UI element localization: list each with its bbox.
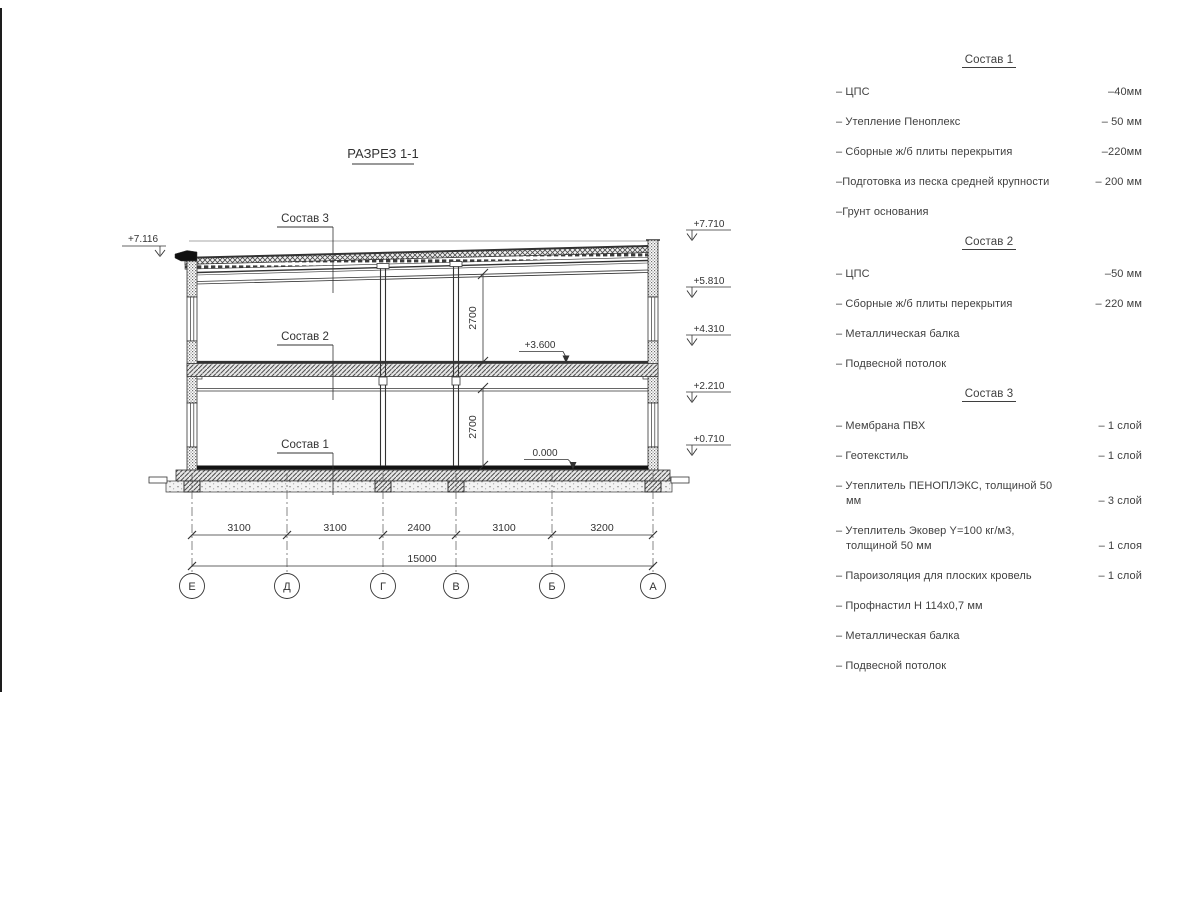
legend-item: – Геотекстиль– 1 слой <box>836 449 1142 464</box>
right-wall <box>643 240 660 470</box>
ground-slab <box>149 466 689 493</box>
legend-group-sostav-3: Состав 3 – Мембрана ПВХ– 1 слой – Геотек… <box>836 387 1142 674</box>
svg-text:+3.600: +3.600 <box>525 340 556 351</box>
left-wall <box>175 251 202 471</box>
svg-text:+7.116: +7.116 <box>128 234 159 245</box>
elevation-floor2: +3.600 <box>519 340 570 363</box>
legend-group-sostav-1: Состав 1 – ЦПС–40мм – Утепление Пеноплек… <box>836 53 1142 220</box>
svg-text:3100: 3100 <box>492 522 516 534</box>
svg-text:+4.310: +4.310 <box>694 324 725 335</box>
floor-slab-2 <box>187 362 658 391</box>
dimension-row-total: 15000 <box>188 553 657 570</box>
svg-text:2700: 2700 <box>467 306 479 330</box>
legend-item: – ЦПС–40мм <box>836 85 1142 100</box>
svg-text:15000: 15000 <box>407 553 436 565</box>
legend-item: – Пароизоляция для плоских кровель– 1 сл… <box>836 569 1142 584</box>
svg-text:Г: Г <box>380 581 386 593</box>
svg-text:А: А <box>649 581 657 593</box>
legend-item: – Мембрана ПВХ– 1 слой <box>836 419 1142 434</box>
label-sostav-3: Состав 3 <box>281 213 329 225</box>
svg-text:+5.810: +5.810 <box>694 276 725 287</box>
label-sostav-1: Состав 1 <box>281 439 329 451</box>
legend-item: – ЦПС–50 мм <box>836 267 1142 282</box>
svg-text:+0.710: +0.710 <box>694 434 725 445</box>
svg-text:0.000: 0.000 <box>532 448 557 459</box>
svg-text:Д: Д <box>283 581 291 593</box>
drawing-sheet: РАЗРЕЗ 1-1 <box>0 0 1200 900</box>
legend-item: – Металлическая балка <box>836 629 1142 644</box>
legend-item: – Утепление Пеноплекс– 50 мм <box>836 115 1142 130</box>
legend-item: – Профнастил Н 114х0,7 мм <box>836 599 1142 614</box>
legend-item: – Сборные ж/б плиты перекрытия– 220 мм <box>836 297 1142 312</box>
roof-assembly <box>185 246 652 284</box>
legend-title: Состав 2 <box>836 235 1142 250</box>
legend-item: –Грунт основания <box>836 205 1142 220</box>
svg-text:+2.210: +2.210 <box>694 381 725 392</box>
axis-bubbles: Е Д Г В Б А <box>180 574 666 599</box>
svg-text:3100: 3100 <box>323 522 347 534</box>
legend-item: – Металлическая балка <box>836 327 1142 342</box>
legend-item: – Подвесной потолок <box>836 659 1142 674</box>
legend-item: – Утеплитель Эковер Y=100 кг/м3, толщино… <box>836 524 1142 554</box>
svg-text:2700: 2700 <box>467 415 479 439</box>
dimension-row-segments: 3100 3100 2400 3100 3200 <box>188 522 657 539</box>
materials-legend: Состав 1 – ЦПС–40мм – Утепление Пеноплек… <box>836 53 1142 689</box>
svg-text:3200: 3200 <box>590 522 614 534</box>
svg-text:В: В <box>452 581 459 593</box>
elevation-right: +7.710 +5.810 +4.310 +2.21 <box>686 219 731 456</box>
label-sostav-2: Состав 2 <box>281 331 329 343</box>
roof-drain-icon <box>175 251 197 262</box>
legend-item: – Подвесной потолок <box>836 357 1142 372</box>
legend-title: Состав 3 <box>836 387 1142 402</box>
legend-item: –Подготовка из песка средней крупности– … <box>836 175 1142 190</box>
legend-item: – Сборные ж/б плиты перекрытия–220мм <box>836 145 1142 160</box>
elevation-left: +7.116 <box>122 234 166 257</box>
svg-text:+7.710: +7.710 <box>694 219 725 230</box>
drawing-title: РАЗРЕЗ 1-1 <box>347 146 419 161</box>
svg-text:Б: Б <box>548 581 555 593</box>
section-drawing: РАЗРЕЗ 1-1 <box>0 0 760 660</box>
svg-text:2400: 2400 <box>407 522 431 534</box>
legend-title: Состав 1 <box>836 53 1142 68</box>
legend-group-sostav-2: Состав 2 – ЦПС–50 мм – Сборные ж/б плиты… <box>836 235 1142 372</box>
svg-text:Е: Е <box>188 581 195 593</box>
svg-text:3100: 3100 <box>227 522 251 534</box>
legend-item: – Утеплитель ПЕНОПЛЭКС, толщиной 50 мм– … <box>836 479 1142 509</box>
